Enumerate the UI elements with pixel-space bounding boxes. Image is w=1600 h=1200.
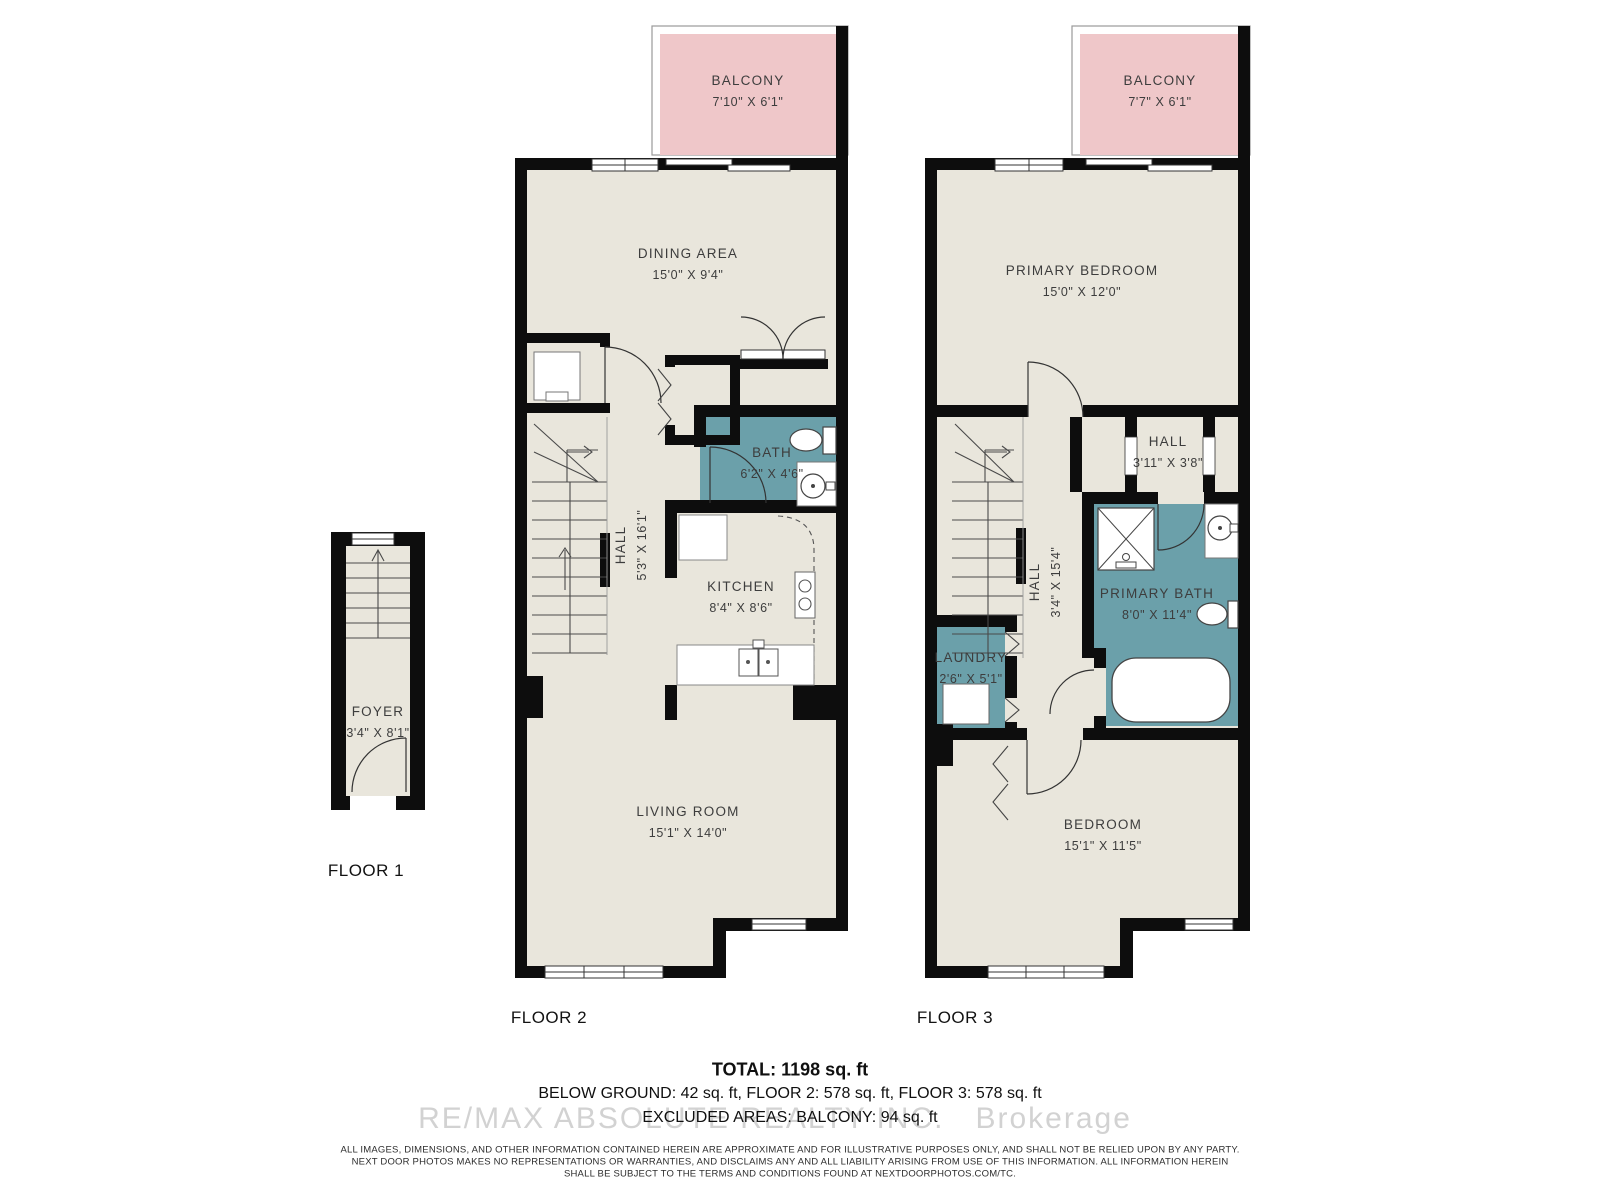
room-label-hall-small: HALL 3'11" X 3'8"	[1133, 434, 1203, 470]
room-label-foyer: FOYER 3'4" X 8'1"	[346, 704, 409, 740]
disclaimer-line-2: NEXT DOOR PHOTOS MAKES NO REPRESENTATION…	[352, 1157, 1229, 1168]
room-label-living: LIVING ROOM 15'1" X 14'0"	[636, 804, 739, 840]
floor1-plan	[331, 532, 425, 810]
room-label-bedroom: BEDROOM 15'1" X 11'5"	[1064, 817, 1142, 853]
floor2-caption: FLOOR 2	[511, 1008, 587, 1028]
room-label-dining: DINING AREA 15'0" X 9'4"	[638, 246, 738, 282]
room-label-bath-f2: BATH 6'2" X 4'6"	[740, 445, 803, 481]
room-label-hall-f3: HALL 3'4" X 15'4"	[1027, 547, 1063, 618]
washer-icon	[943, 684, 989, 724]
total-area-text: TOTAL: 1198 sq. ft	[712, 1060, 868, 1081]
window-icon	[352, 533, 394, 545]
room-label-balcony-f2: BALCONY 7'10" X 6'1"	[712, 73, 785, 109]
bathtub-icon	[1112, 658, 1230, 722]
sink-icon	[1205, 504, 1238, 558]
floor3-caption: FLOOR 3	[917, 1008, 993, 1028]
room-label-primary-bath: PRIMARY BATH 8'0" X 11'4"	[1100, 586, 1214, 622]
room-label-primary-bedroom: PRIMARY BEDROOM 15'0" X 12'0"	[1006, 263, 1159, 299]
room-label-laundry: LAUNDRY 2'6" X 5'1"	[935, 650, 1008, 686]
area-breakdown-text: BELOW GROUND: 42 sq. ft, FLOOR 2: 578 sq…	[538, 1085, 1041, 1103]
room-label-hall-f2: HALL 5'3" X 16'1"	[613, 510, 649, 581]
floor1-caption: FLOOR 1	[328, 861, 404, 881]
room-label-balcony-f3: BALCONY 7'7" X 6'1"	[1124, 73, 1197, 109]
disclaimer-line-1: ALL IMAGES, DIMENSIONS, AND OTHER INFORM…	[340, 1145, 1239, 1156]
water-tank-icon	[534, 352, 580, 401]
shower-icon	[1098, 508, 1154, 570]
room-label-kitchen: KITCHEN 8'4" X 8'6"	[707, 579, 775, 615]
floor-plan-page: FOYER 3'4" X 8'1" BALCONY 7'10" X 6'1" D…	[0, 0, 1600, 1200]
excluded-areas-text: EXCLUDED AREAS: BALCONY: 94 sq. ft	[642, 1109, 937, 1127]
floorplan-graphics	[0, 0, 1600, 1200]
disclaimer-line-3: SHALL BE SUBJECT TO THE TERMS AND CONDIT…	[564, 1169, 1016, 1180]
